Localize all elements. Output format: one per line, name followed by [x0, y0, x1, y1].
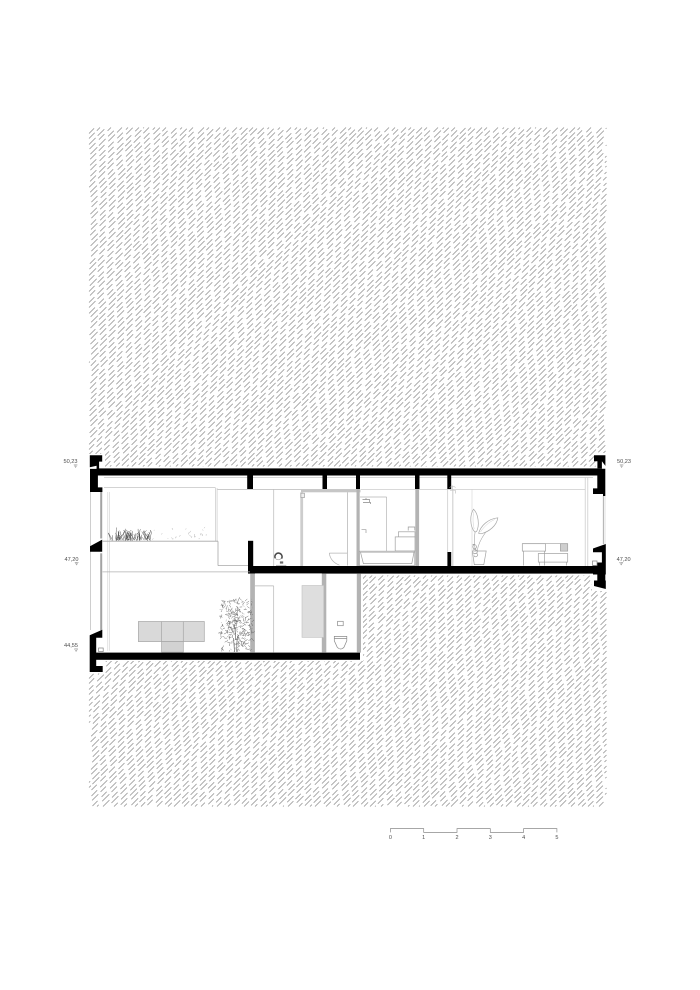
svg-text:4: 4 — [522, 835, 525, 841]
svg-text:50,23: 50,23 — [617, 459, 631, 465]
svg-text:3: 3 — [489, 835, 492, 841]
svg-text:1: 1 — [422, 835, 425, 841]
svg-text:2: 2 — [455, 835, 458, 841]
svg-text:44,55: 44,55 — [64, 643, 78, 649]
svg-text:0: 0 — [389, 835, 392, 841]
svg-text:47,20: 47,20 — [617, 557, 631, 563]
svg-text:50,23: 50,23 — [64, 459, 78, 465]
svg-text:5: 5 — [555, 835, 558, 841]
